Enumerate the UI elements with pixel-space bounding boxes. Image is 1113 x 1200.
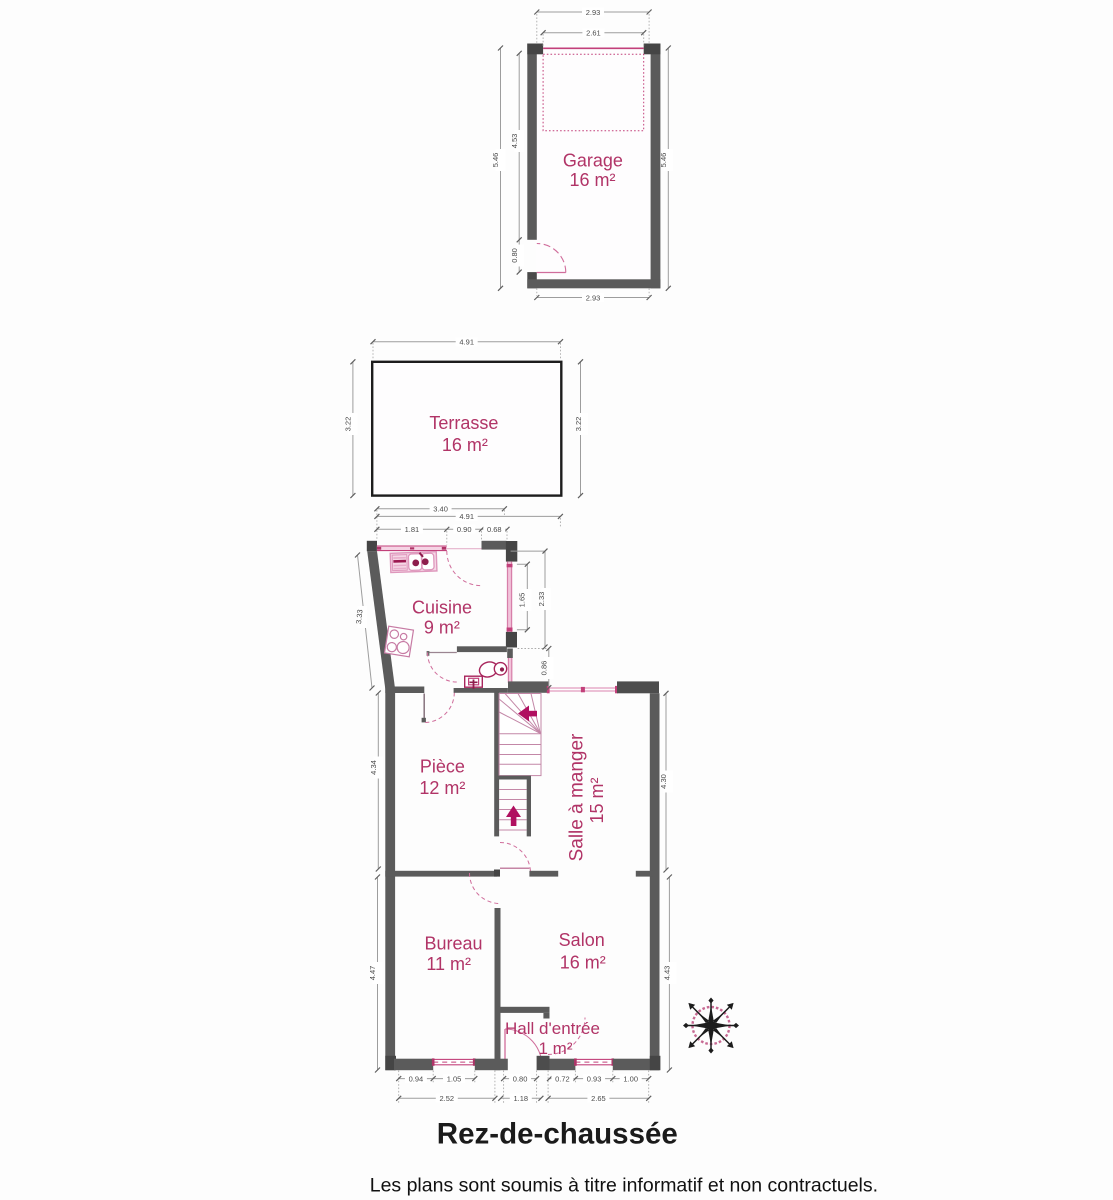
svg-text:16 m²: 16 m² (569, 170, 615, 190)
svg-text:15 m²: 15 m² (587, 777, 607, 823)
svg-text:3.22: 3.22 (574, 417, 583, 432)
svg-text:4.34: 4.34 (369, 760, 378, 775)
svg-text:0.86: 0.86 (540, 661, 549, 676)
svg-text:4.91: 4.91 (459, 512, 474, 521)
svg-text:0.93: 0.93 (587, 1074, 602, 1083)
svg-text:1.18: 1.18 (513, 1094, 528, 1103)
svg-text:9 m²: 9 m² (424, 618, 460, 638)
svg-text:0.94: 0.94 (409, 1074, 424, 1083)
svg-text:1.00: 1.00 (623, 1074, 638, 1083)
svg-text:2.52: 2.52 (439, 1094, 454, 1103)
svg-text:4.53: 4.53 (510, 134, 519, 149)
svg-text:1.05: 1.05 (447, 1074, 462, 1083)
svg-text:2.33: 2.33 (537, 592, 546, 607)
svg-text:2.93: 2.93 (586, 8, 601, 17)
svg-text:0.72: 0.72 (555, 1074, 570, 1083)
svg-text:3.33: 3.33 (354, 609, 364, 624)
svg-text:4.91: 4.91 (459, 338, 474, 347)
svg-text:Salon: Salon (559, 930, 605, 950)
svg-text:Pièce: Pièce (420, 757, 465, 777)
svg-text:Bureau: Bureau (424, 934, 482, 954)
svg-text:0.90: 0.90 (457, 525, 472, 534)
svg-text:5.46: 5.46 (491, 153, 500, 168)
svg-text:0.80: 0.80 (513, 1074, 528, 1083)
svg-text:1.81: 1.81 (405, 525, 420, 534)
svg-text:1 m²: 1 m² (539, 1039, 573, 1058)
svg-text:2.61: 2.61 (586, 29, 601, 38)
svg-text:Rez-de-chaussée: Rez-de-chaussée (437, 1118, 678, 1151)
svg-text:Garage: Garage (563, 151, 623, 171)
svg-text:2.93: 2.93 (586, 293, 601, 302)
svg-text:3.40: 3.40 (433, 505, 448, 514)
svg-text:4.30: 4.30 (659, 774, 668, 789)
svg-text:Terrasse: Terrasse (429, 413, 498, 433)
svg-text:0.80: 0.80 (510, 248, 519, 263)
svg-text:3.22: 3.22 (344, 417, 353, 432)
svg-text:16 m²: 16 m² (560, 953, 606, 973)
svg-text:16 m²: 16 m² (442, 435, 488, 455)
svg-text:5.46: 5.46 (659, 153, 668, 168)
svg-text:2.65: 2.65 (591, 1094, 606, 1103)
svg-text:4.43: 4.43 (662, 966, 671, 981)
svg-text:4.47: 4.47 (368, 966, 377, 981)
svg-text:0.68: 0.68 (487, 525, 502, 534)
svg-text:Les plans sont soumis à titre: Les plans sont soumis à titre informatif… (370, 1175, 878, 1197)
svg-text:Salle à manger: Salle à manger (567, 733, 588, 861)
svg-text:Cuisine: Cuisine (412, 598, 472, 618)
svg-text:1.65: 1.65 (518, 593, 527, 608)
svg-text:11 m²: 11 m² (426, 954, 471, 974)
svg-text:12 m²: 12 m² (419, 778, 465, 798)
svg-text:Hall d'entrée: Hall d'entrée (505, 1019, 600, 1038)
